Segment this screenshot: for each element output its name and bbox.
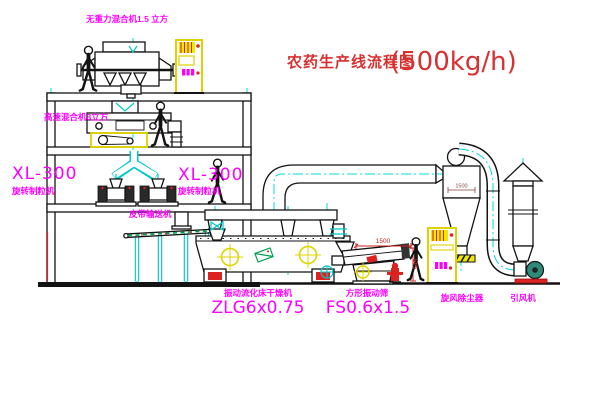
label-granulator-name-left: 旋转制粒机: [11, 186, 55, 196]
dryer-foot: [204, 269, 226, 282]
label-cyclone: 旋风除尘器: [440, 293, 484, 303]
label-mid-mixer: 高速混合机3立方: [44, 112, 109, 122]
label-granulator-model-left: XL-300: [12, 164, 77, 184]
label-screen-model: FS0.6x1.5: [326, 298, 410, 318]
control-cabinet-bottom: [426, 228, 458, 283]
dim-cyclone: 1500: [455, 184, 467, 190]
label-granulator-model-right: XL-300: [178, 165, 243, 185]
control-cabinet-top: [174, 40, 204, 93]
label-dryer-model: ZLG6x0.75: [211, 298, 304, 318]
label-top-mixer: 无重力混合机1.5 立方: [85, 14, 169, 24]
label-dryer-name: 振动流化床干燥机: [224, 288, 293, 298]
label-screen-name: 方形振动筛: [346, 288, 389, 298]
dim-screen-length: 1500: [376, 238, 391, 245]
cad-flow-diagram: 农药生产线流程图 (500kg/h) 无重力混合机1.5 立方 高速混合机3立方…: [0, 0, 600, 403]
ground-line: [38, 282, 560, 287]
label-granulator-name-right: 旋转制粒机: [177, 186, 221, 196]
label-belt-conveyor: 皮带输送机: [128, 209, 172, 219]
high-speed-mixer: [87, 101, 183, 147]
dryer-foot: [312, 269, 334, 282]
dim-screen-height: 545: [413, 258, 420, 269]
rotary-granulator-left: [96, 174, 136, 206]
label-fan: 引风机: [510, 293, 536, 303]
exhaust-duct: [263, 165, 448, 212]
induced-draft-fan: [514, 262, 547, 284]
page-title-capacity: (500kg/h): [390, 47, 517, 77]
drop-pipe: [172, 212, 191, 229]
drawing-canvas: 农药生产线流程图 (500kg/h) 无重力混合机1.5 立方 高速混合机3立方…: [0, 0, 600, 403]
rotary-granulator-right: [138, 174, 178, 206]
